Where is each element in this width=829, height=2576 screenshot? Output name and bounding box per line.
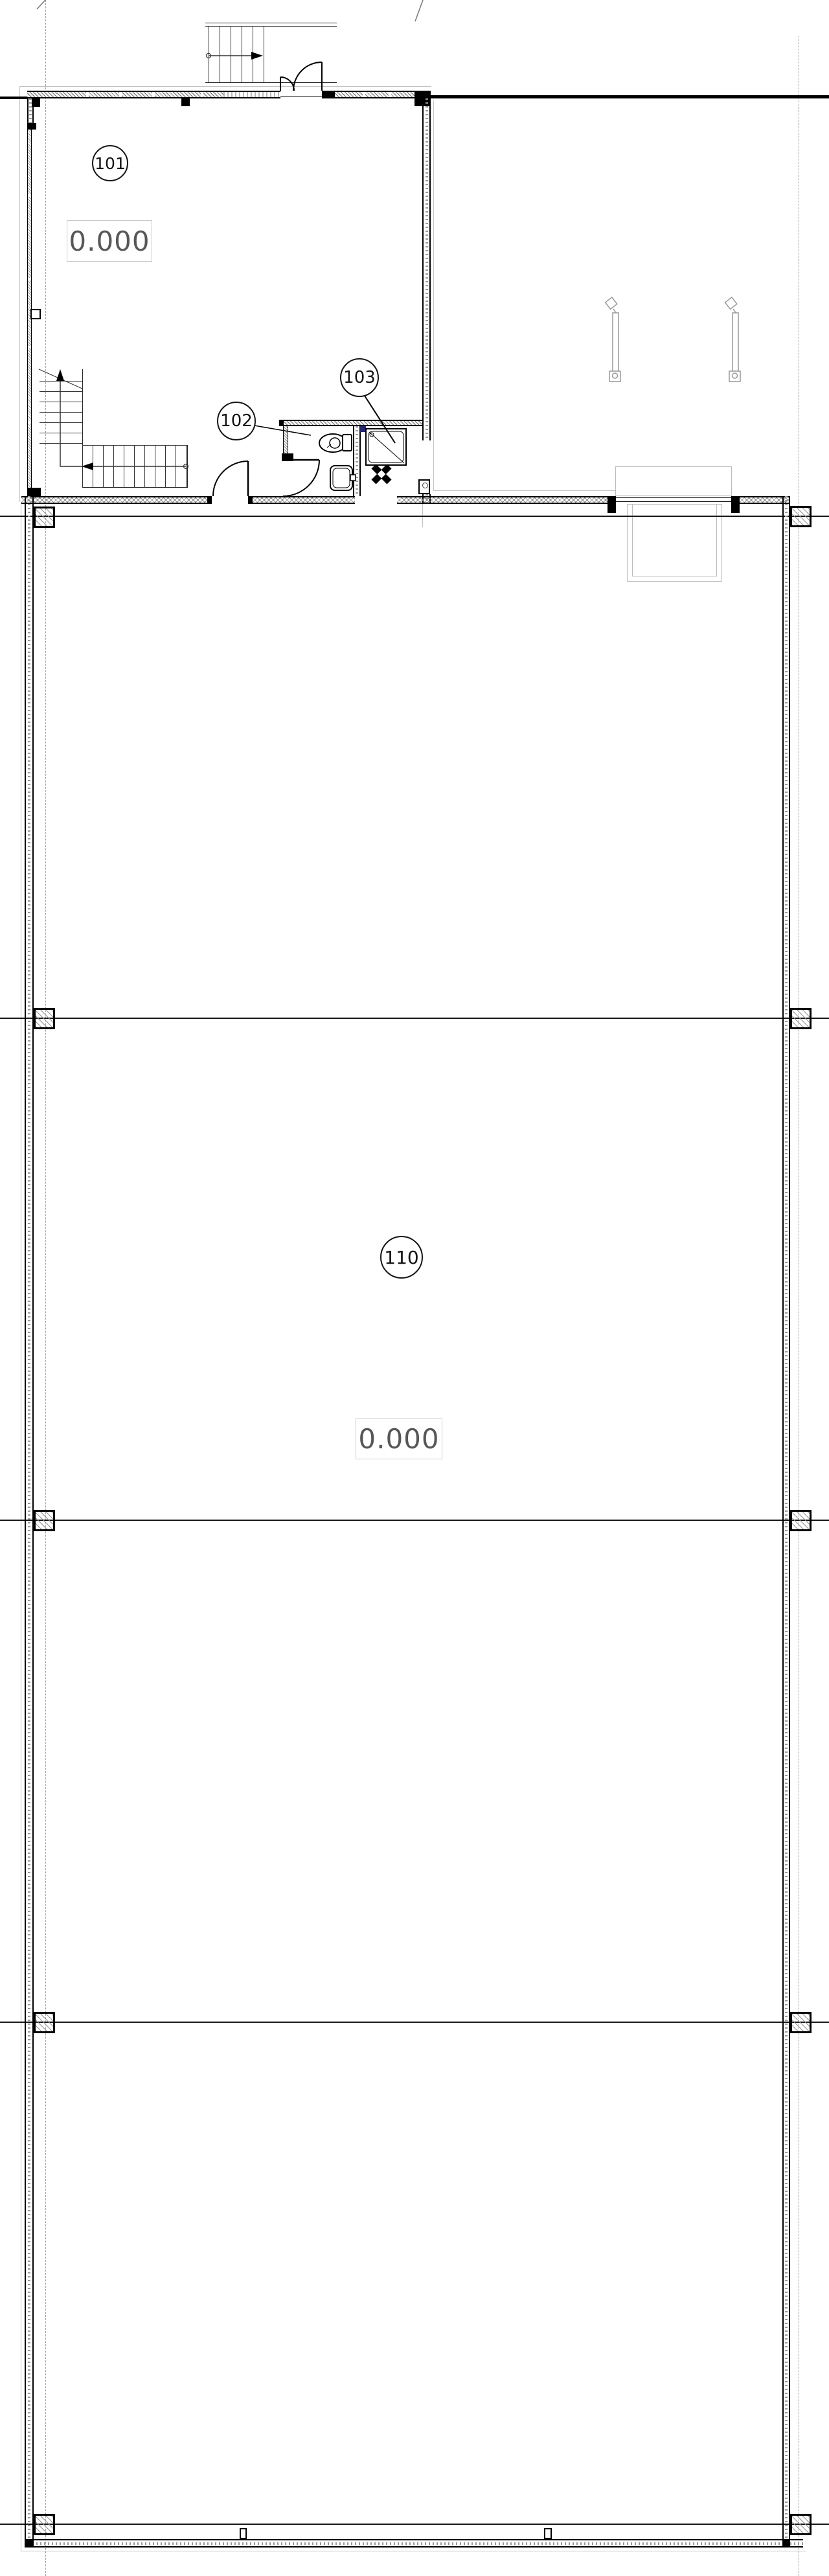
column-left-5 <box>34 2514 55 2535</box>
floor-plan: 101 0.000 102 103 110 0.000 <box>0 0 829 2576</box>
door-jamb <box>248 496 253 504</box>
partition-marker <box>360 426 366 432</box>
door-stub-cap <box>282 453 293 461</box>
downpipe-body <box>613 313 619 371</box>
wc-wall-jamb <box>279 420 284 426</box>
floor-drain-arm <box>374 466 389 482</box>
shower-drain-circle <box>370 433 374 437</box>
entrance-jamb-right <box>731 496 740 513</box>
level-value-110: 0.000 <box>358 1423 439 1455</box>
shower-tray <box>366 429 406 465</box>
downpipe-bracket <box>729 371 740 382</box>
window-mullion <box>28 421 31 424</box>
hall-top-wall-3 <box>397 496 608 504</box>
floor-drain-center <box>378 470 386 479</box>
stair-lower-flight-bottom <box>82 487 188 488</box>
wc-top-wall <box>283 420 422 426</box>
floor-drain-arm <box>374 466 389 482</box>
canopy-line-right <box>431 95 829 98</box>
window-mullion <box>28 278 31 280</box>
entry-stair-risers <box>209 26 269 83</box>
column-left-3 <box>34 1510 55 1531</box>
hall-bottom-wall <box>25 2539 803 2548</box>
column-left-1 <box>34 507 55 528</box>
downpipe-neck <box>733 309 736 313</box>
entrance-sliding-door <box>616 497 731 502</box>
column-left-2 <box>34 1008 55 1029</box>
room-number-103: 103 <box>343 368 376 387</box>
downpipe-cap <box>725 297 737 309</box>
offset-outline-annex-left <box>19 86 20 502</box>
downpipe-cap <box>606 297 617 309</box>
room-tag-103: 103 <box>340 358 379 397</box>
canopy-line-left <box>0 97 27 99</box>
column-right-1 <box>790 506 812 527</box>
hall-left-wall <box>25 496 34 2548</box>
level-marker-101: 0.000 <box>67 220 152 262</box>
left-wall-post <box>30 309 41 319</box>
entrance-vestibule-inner <box>632 504 717 576</box>
window-mullion <box>28 194 31 197</box>
grid-line-A <box>0 516 829 517</box>
corner-bump <box>32 98 40 107</box>
room-number-101: 101 <box>95 154 126 173</box>
door-swing-arc <box>213 461 248 496</box>
stair-upper-flight-risers <box>40 381 82 446</box>
hall-right-wall <box>782 496 790 2548</box>
bottom-wall-pier-1 <box>240 2528 247 2539</box>
wall-cap <box>27 123 36 130</box>
room-number-102: 102 <box>220 411 253 431</box>
window-mullion <box>86 92 89 97</box>
window-mullion <box>201 92 203 97</box>
grid-leader-tick-1 <box>37 0 45 9</box>
wc-left-wall <box>283 426 288 455</box>
shower-tray-inner <box>369 431 403 462</box>
annex-right-wall <box>422 98 431 440</box>
column-right-2 <box>790 1008 812 1029</box>
bottom-wall-pier-2 <box>544 2528 552 2539</box>
column-right-5 <box>790 2514 812 2535</box>
entry-door-threshold <box>280 97 322 97</box>
door-frame-element <box>418 479 430 494</box>
porch-edge-horizontal <box>433 490 615 491</box>
downpipe-outlet <box>732 373 738 378</box>
level-value-101: 0.000 <box>69 225 150 257</box>
downpipe-bracket <box>609 371 620 382</box>
annex-wall-corner-block <box>27 91 57 98</box>
porch-edge-vertical <box>433 100 434 490</box>
annex-sw-pier <box>27 488 41 496</box>
hall-corner-sw <box>25 2539 34 2548</box>
annex-window-band-2 <box>335 91 414 98</box>
room-tag-102: 102 <box>217 402 256 440</box>
grid-line-D <box>0 2022 829 2023</box>
grid-line-E <box>0 2524 829 2525</box>
level-marker-110: 0.000 <box>356 1419 442 1459</box>
hinge-circle <box>422 483 428 488</box>
grid-centerline-right <box>799 36 799 2576</box>
door-swing-arc <box>283 460 319 496</box>
hall-top-wall-1 <box>21 496 207 504</box>
column-right-4 <box>790 2012 812 2033</box>
stair-lower-flight-end <box>187 445 188 488</box>
downpipe-body <box>732 313 738 371</box>
downpipe-neck <box>613 309 617 313</box>
window-mullion <box>152 92 155 97</box>
grid-leader-tick-2 <box>415 0 423 21</box>
offset-outline-hall-bottom <box>21 2551 806 2551</box>
annex-window-band-1 <box>57 91 223 98</box>
room-tag-101: 101 <box>92 145 128 181</box>
downpipe-2 <box>725 297 740 382</box>
vector-overlay <box>0 0 829 2576</box>
toilet-tank <box>343 435 352 451</box>
window-mullion <box>119 92 122 97</box>
toilet-inner <box>330 438 340 448</box>
room-number-110: 110 <box>384 1247 418 1268</box>
downpipe-1 <box>606 297 620 382</box>
stair-arrow-up <box>56 369 64 381</box>
door-jamb <box>207 496 212 504</box>
door-swing-arc <box>280 77 294 91</box>
shower-diagonal <box>369 432 404 463</box>
entrance-platform <box>615 466 732 496</box>
offset-outline-hall-left <box>21 502 21 2551</box>
column-left-4 <box>34 2012 55 2033</box>
wall-post <box>181 98 190 106</box>
wc-partition-wall <box>353 426 361 496</box>
wall-pier <box>322 91 335 98</box>
stair-lower-flight-risers <box>82 445 188 488</box>
toilet-mark <box>327 444 331 448</box>
entry-stair-edge-top <box>205 23 337 23</box>
window-mullion <box>363 92 365 97</box>
window-mullion <box>389 92 391 97</box>
hall-top-wall-2 <box>253 496 355 504</box>
window-mullion <box>28 346 31 348</box>
sink-basin <box>333 468 350 488</box>
offset-outline-annex-top <box>19 86 431 87</box>
grid-line-B <box>0 1018 829 1019</box>
downpipe-outlet <box>613 373 618 378</box>
room-tag-110: 110 <box>380 1236 423 1279</box>
entry-stair-edge-bottom <box>205 82 337 83</box>
column-right-3 <box>790 1510 812 1531</box>
grid-line-C <box>0 1520 829 1521</box>
hall-corner-se <box>782 2539 790 2548</box>
entrance-jamb-left <box>608 496 616 513</box>
toilet-bowl <box>319 434 346 452</box>
sink-outer <box>330 466 352 490</box>
annex-sill-band <box>223 91 280 98</box>
